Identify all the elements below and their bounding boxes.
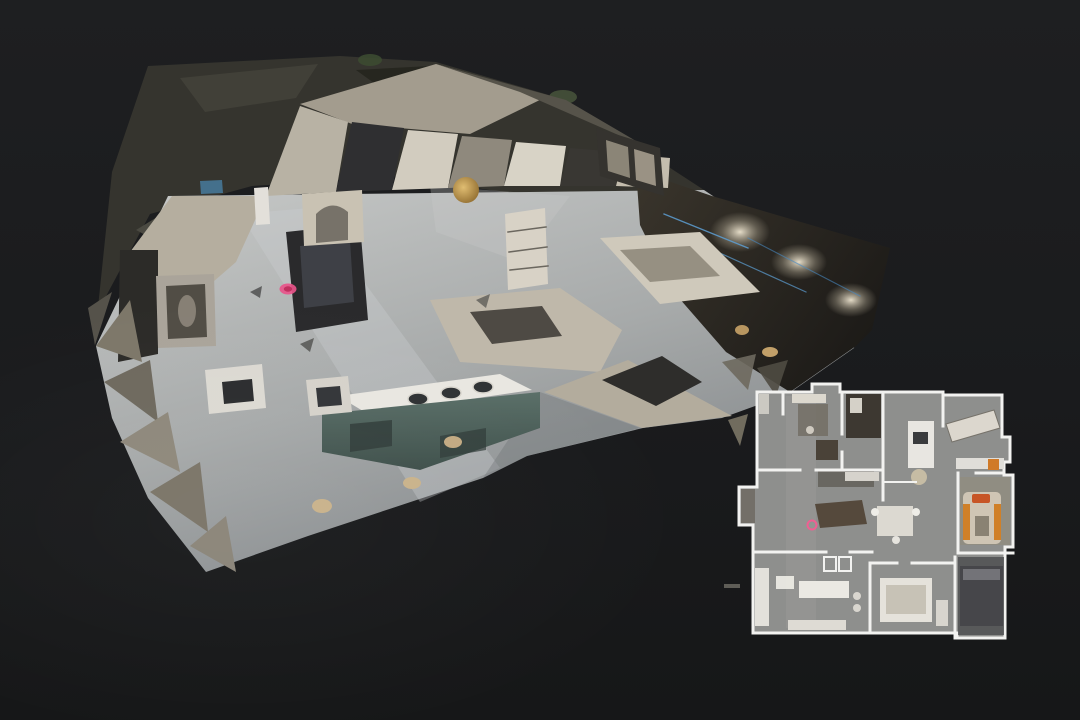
massage-chair-head [972,494,990,503]
massage-chair-arm [963,504,970,540]
chair [892,536,900,544]
mesh-edge [724,584,740,588]
dark-nook [741,489,755,523]
shrub [358,54,382,66]
island-inset [316,386,342,407]
viewer-stage [0,0,1080,720]
sink [441,387,461,399]
kitchen-island [799,581,849,598]
arch-opening [316,205,348,243]
lounge-chair [762,347,778,357]
chair [912,508,920,516]
mesh-edge [728,414,748,446]
position-marker-ring[interactable] [284,286,292,291]
bed-pillows [963,569,1000,580]
wall-tv-screen [200,180,223,194]
kitchen-box [776,576,794,589]
tv-screen [300,241,354,308]
chair [871,508,879,516]
spotlight-pool [710,212,770,252]
massage-chair-seat [975,516,989,536]
stool [853,604,861,612]
desk [792,394,826,403]
cabinet-row [845,472,879,481]
mirror-motif [178,295,196,327]
chair [806,426,814,434]
dresser [936,600,948,626]
scene-canvas [0,0,1080,720]
floorplan-minimap[interactable] [739,384,1013,638]
spotlight-pool [825,283,877,317]
orange-chair [988,459,999,470]
sink [408,393,428,405]
fridge [254,187,270,225]
island [816,440,838,460]
pantry-inset [913,432,928,444]
cabinet [759,394,769,414]
stool [444,436,462,448]
lounge-chair [735,325,749,335]
massage-chair-arm [994,504,1001,540]
dark-island [815,500,867,528]
counter [788,620,846,630]
closet-item [850,398,862,413]
sink [473,381,493,393]
counter [755,568,769,626]
island-inset [222,379,254,404]
stool [312,499,332,513]
table [877,506,913,536]
stool [403,477,421,489]
pantry [908,421,934,468]
bed-trim [886,585,926,614]
gold-table [453,177,479,203]
stool [853,592,861,600]
